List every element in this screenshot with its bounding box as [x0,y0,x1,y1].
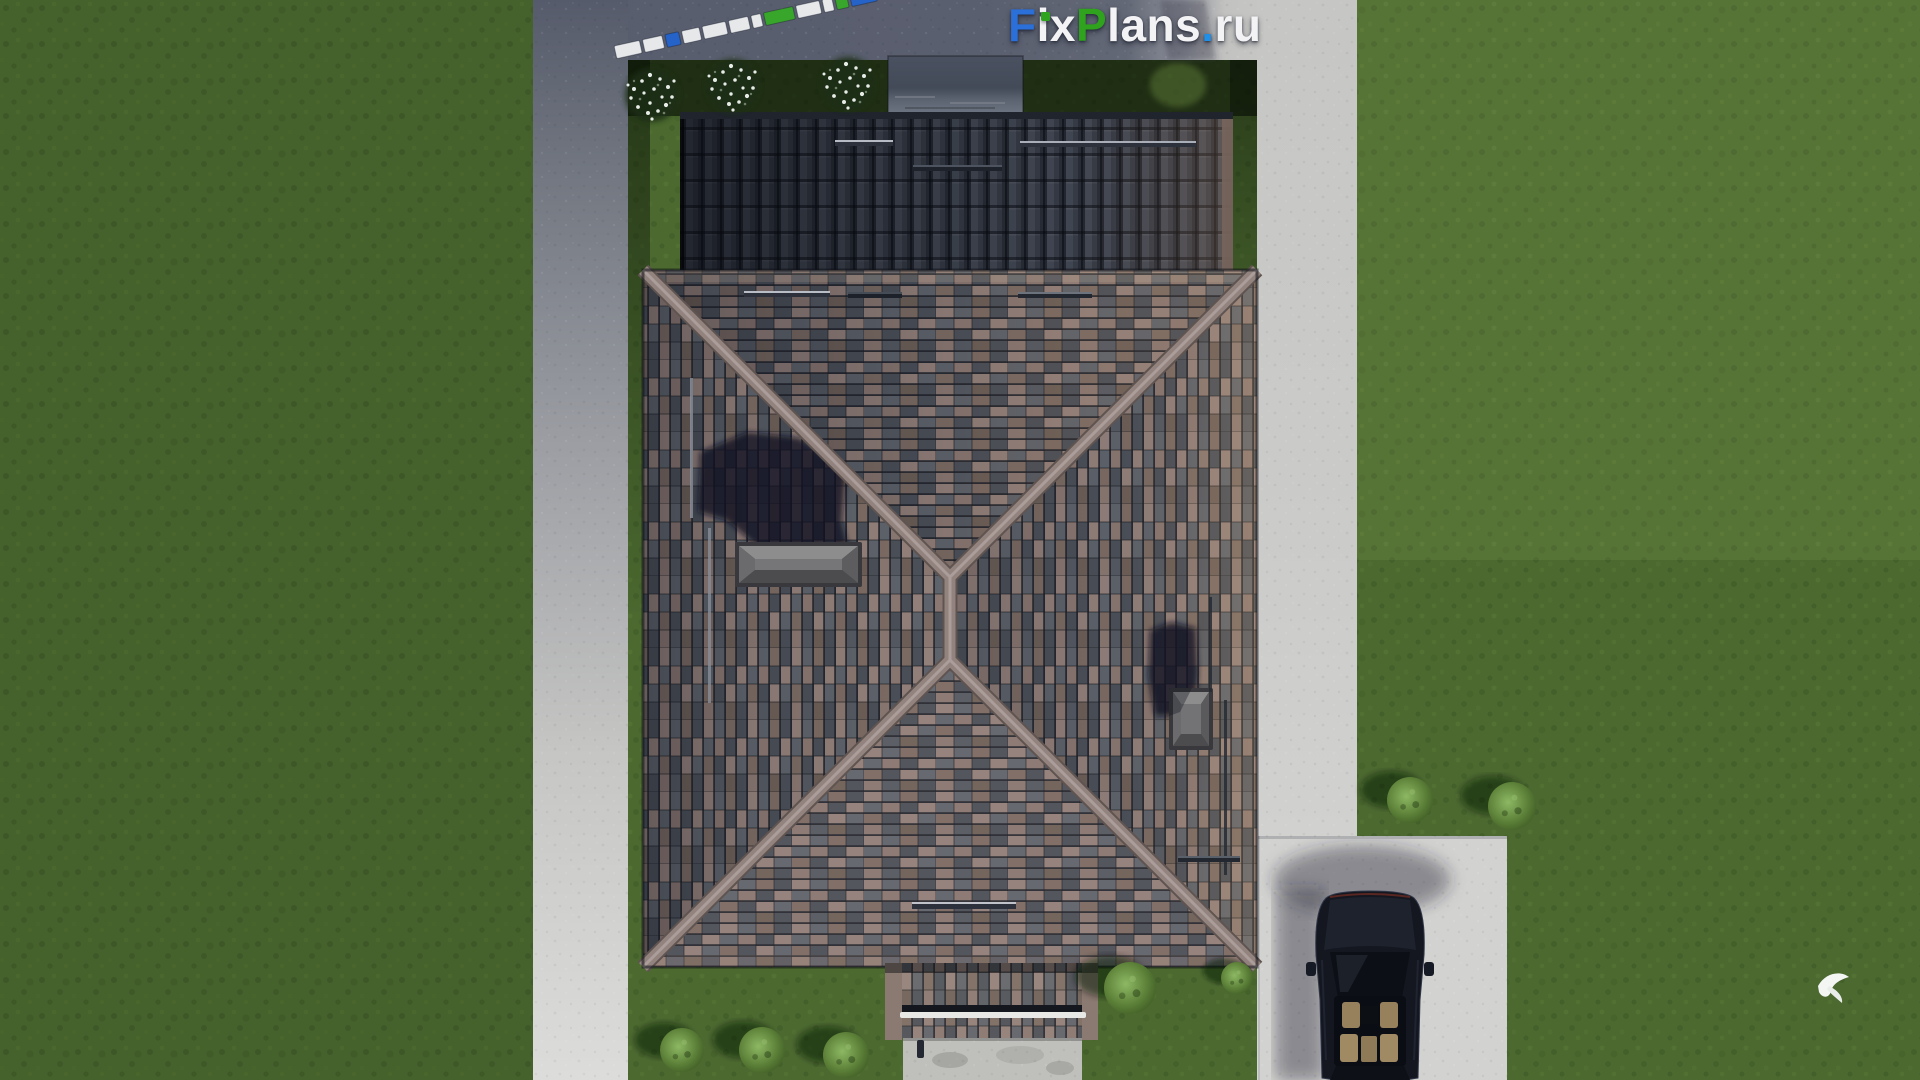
car-hood [1324,897,1416,950]
porch-roof [885,963,1098,1040]
porch [885,963,1098,1080]
watermark-logo: FixPlans.ru [1008,2,1262,48]
skylight-right [1169,688,1213,750]
skylight-left [735,542,862,587]
logo-seg-lans: lans [1107,2,1201,48]
car-mirror-left [1306,962,1316,976]
logo-seg-ix: ix [1037,2,1076,48]
porch-roof-trim-left [885,963,902,1040]
lawn-topright-tint [1357,0,1920,560]
car-mirror-right [1424,962,1434,976]
car [1306,891,1434,1080]
roof-dormer-box [888,56,1023,114]
lawn-left-tint [0,0,533,1080]
fence-panel-white [751,14,764,29]
garage-roof-edge-trim [1222,112,1233,270]
logo-i-dot-green [1041,12,1050,21]
logo-seg-f: F [1008,2,1037,48]
flower-bush [625,68,679,122]
fence-panel-blue [665,32,681,48]
logo-seg-p: P [1076,2,1107,48]
logo-seg-ru: ru [1215,2,1262,48]
path-left-texture [533,0,628,1080]
main-roof [643,270,1257,967]
fence-panel-white [822,0,835,13]
car-rear-window [1330,1066,1410,1080]
garage-roof [680,112,1233,270]
scene-svg [0,0,1920,1080]
porch-downspout [917,1040,924,1058]
logo-seg-dot: . [1201,2,1214,48]
porch-gutter [900,1012,1086,1018]
flower-bush [821,57,875,111]
flower-bush [706,59,760,113]
garage-roof-ridge [680,112,1233,119]
aerial-render-image: FixPlans.ru [0,0,1920,1080]
